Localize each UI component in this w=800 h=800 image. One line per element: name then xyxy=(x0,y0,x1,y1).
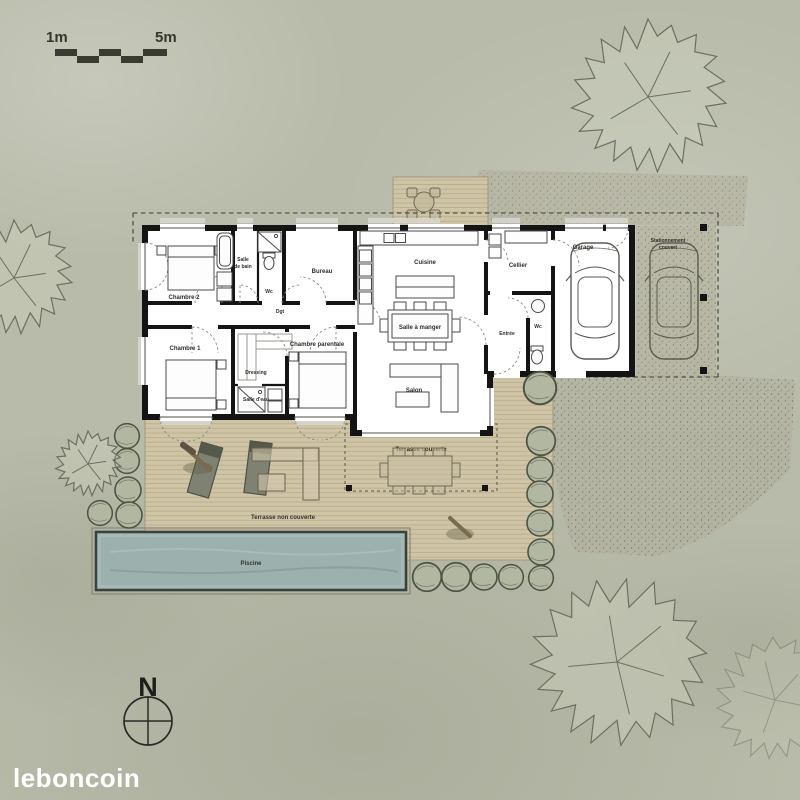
room-label-salle-de-bain-1: Salle xyxy=(237,257,249,263)
room-label-bureau: Bureau xyxy=(312,269,333,275)
room-label-dgt: Dgt xyxy=(276,309,285,315)
room-label-wc-right: Wc xyxy=(534,324,542,330)
tree-bottom-right-partial xyxy=(689,613,800,785)
room-label-salle-de-bain-2: de bain xyxy=(234,264,252,270)
room-label-salle-deau: Salle d'eau xyxy=(243,397,269,403)
compass: N xyxy=(124,672,172,745)
room-label-salle-a-manger: Salle à manger xyxy=(399,325,442,331)
room-label-wc-left: Wc xyxy=(265,289,273,295)
terrace-post xyxy=(346,485,352,491)
room-label-cuisine: Cuisine xyxy=(414,260,436,266)
room-label-garage: Garage xyxy=(573,245,594,251)
room-label-chambre1: Chambre 1 xyxy=(169,346,201,352)
room-label-salon: Salon xyxy=(406,388,423,394)
scale-label-5m: 5m xyxy=(155,29,177,46)
room-label-entree: Entrée xyxy=(499,331,515,337)
scale-bar: 1m 5m xyxy=(46,29,177,63)
terrace-post xyxy=(482,485,488,491)
tree-terrace-left xyxy=(56,431,121,496)
uncovered-terrace-label: Terrasse non couverte xyxy=(251,515,316,521)
tree-top-right xyxy=(572,19,726,172)
pool-label: Piscine xyxy=(240,561,262,567)
leboncoin-logo: leboncoin xyxy=(13,763,140,793)
pool: Piscine xyxy=(92,528,410,594)
scale-label-1m: 1m xyxy=(46,29,68,46)
room-label-stationnement-2: couvert xyxy=(659,245,677,251)
room-label-chambre2: Chambre 2 xyxy=(168,295,200,301)
floor-plan-image: Piscine Terrasse couverte Terrasse non c… xyxy=(0,0,800,800)
room-label-cellier: Cellier xyxy=(509,263,528,269)
room-label-dressing: Dressing xyxy=(245,370,266,376)
tree-left xyxy=(0,220,72,334)
room-label-stationnement-1: Stationnement xyxy=(651,238,686,244)
room-label-chambre-parentale: Chambre parentale xyxy=(290,342,345,348)
plan-svg: Piscine Terrasse couverte Terrasse non c… xyxy=(0,0,800,800)
